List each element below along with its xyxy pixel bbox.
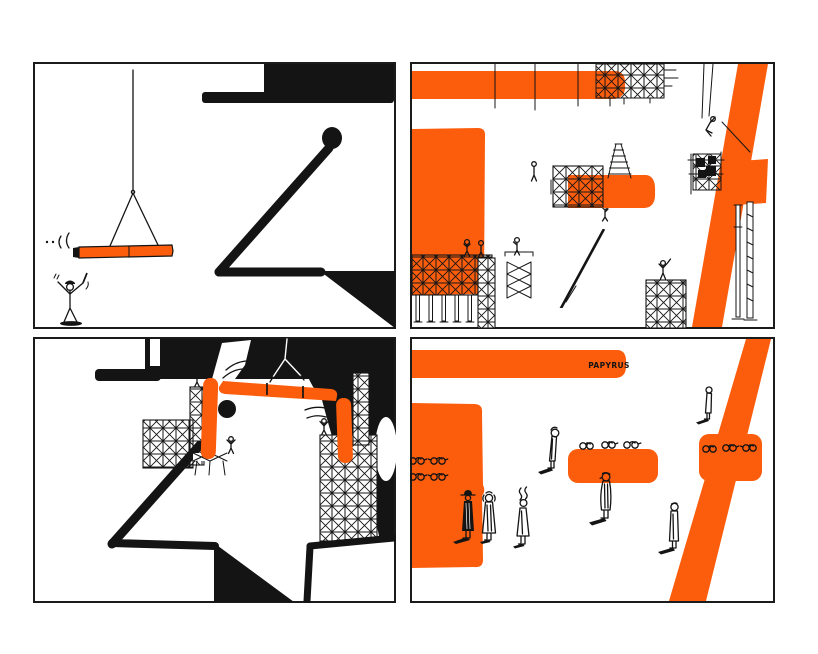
panel-1-hoisting-beam xyxy=(33,62,396,329)
beam-body xyxy=(79,245,173,258)
suspended-orange-beam xyxy=(73,245,173,258)
eye-dot xyxy=(218,400,236,418)
white-ear-curve xyxy=(375,417,396,481)
orange-exhibit-wall xyxy=(412,403,484,568)
orange-temple-left xyxy=(201,378,219,459)
brow-bar xyxy=(202,92,394,103)
ground-patch xyxy=(60,321,82,326)
beam-tip xyxy=(73,247,79,258)
white-notch xyxy=(150,339,160,366)
frame-lens-block xyxy=(699,434,762,481)
panel-2-construction-site xyxy=(410,62,775,329)
papyrus-label: PAPYRUS xyxy=(588,361,630,370)
column-notch xyxy=(720,159,768,206)
papyrus-sign-beam: PAPYRUS xyxy=(412,350,630,378)
scaffold-column xyxy=(478,258,495,328)
upper-lip-line xyxy=(112,543,215,546)
scaffold-column-tall xyxy=(353,373,369,445)
panel-4-gallery: PAPYRUS xyxy=(410,337,775,603)
orange-temple-right xyxy=(336,398,353,463)
brow-bar xyxy=(95,369,161,381)
panel-3-assembling-glasses xyxy=(33,337,396,603)
orange-top-beam xyxy=(412,71,625,99)
scaffold-cluster-on-column xyxy=(688,152,724,194)
comic-page: PAPYRUS xyxy=(0,0,818,654)
